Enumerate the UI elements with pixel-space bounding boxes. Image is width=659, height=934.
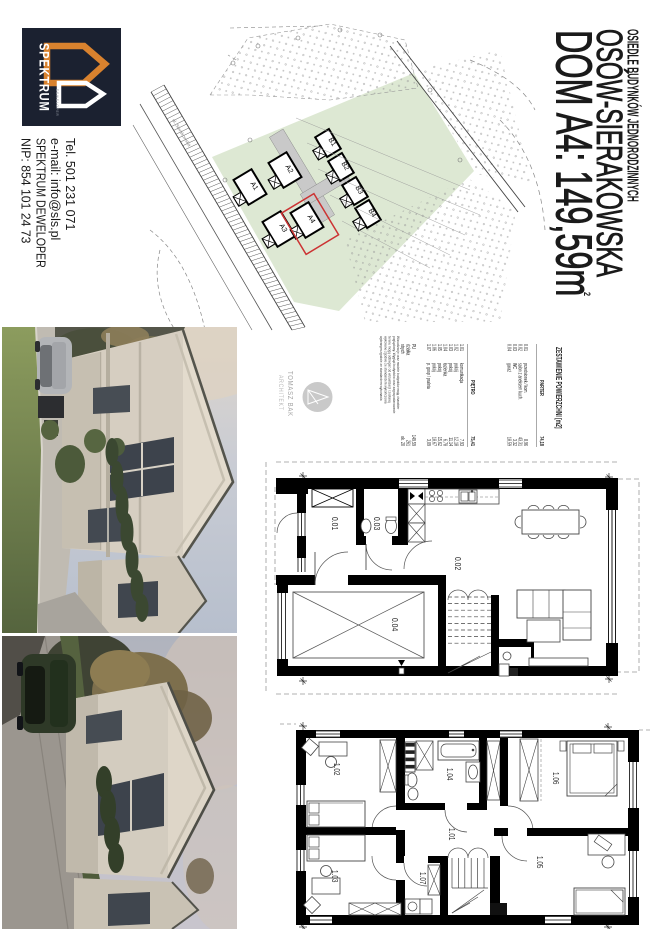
svg-text:DEWELOPER: DEWELOPER: [55, 89, 59, 117]
svg-text:PARTER: PARTER: [538, 380, 545, 396]
svg-text:DOM A4: 149,59m: DOM A4: 149,59m: [545, 30, 602, 296]
svg-text:ZESTAWIENIE POWIERZCHNI [m2]: ZESTAWIENIE POWIERZCHNI [m2]: [554, 347, 562, 429]
svg-text:75,41: 75,41: [469, 436, 476, 446]
svg-text:0.04: 0.04: [390, 618, 400, 632]
svg-text:0.04: 0.04: [506, 344, 512, 351]
svg-text:ARCHITEKT: ARCHITEKT: [277, 375, 283, 411]
svg-text:wybranym zgodnie ze standardem: wybranym zgodnie ze standardem wykonania: [379, 336, 383, 401]
svg-text:1.04: 1.04: [445, 768, 455, 780]
svg-text:PIĘTRO: PIĘTRO: [469, 380, 476, 395]
svg-text:1.07: 1.07: [426, 344, 432, 351]
svg-text:1.01: 1.01: [447, 828, 457, 840]
svg-text:1.07: 1.07: [418, 872, 428, 884]
svg-text:1.05: 1.05: [535, 856, 545, 868]
svg-text:NIP: 854 101 24 73: NIP: 854 101 24 73: [18, 138, 32, 244]
svg-text:SPEKTRUM: SPEKTRUM: [36, 43, 51, 112]
svg-text:3,09: 3,09: [426, 439, 432, 446]
svg-text:SPEKTRUM DEWELOPER: SPEKTRUM DEWELOPER: [33, 138, 47, 268]
svg-text:2: 2: [582, 292, 592, 296]
svg-text:e-mail: info@sls.pl: e-mail: info@sls.pl: [48, 138, 62, 240]
svg-text:1.06: 1.06: [551, 772, 561, 784]
svg-text:garaż: garaż: [506, 363, 512, 373]
svg-text:1.02: 1.02: [332, 763, 342, 775]
svg-text:1.03: 1.03: [330, 870, 340, 882]
svg-text:0.01: 0.01: [330, 517, 340, 530]
svg-text:p. gosp / pralnia: p. gosp / pralnia: [426, 363, 432, 389]
svg-text:74,18: 74,18: [538, 436, 545, 446]
svg-text:0.02: 0.02: [453, 557, 463, 570]
svg-text:0.03: 0.03: [372, 517, 382, 530]
svg-text:18,59: 18,59: [506, 437, 512, 446]
svg-text:Tel. 501 231 071: Tel. 501 231 071: [63, 138, 77, 230]
svg-text:TOMASZ BAK: TOMASZ BAK: [286, 371, 294, 417]
svg-text:ok. 20: ok. 20: [400, 436, 406, 446]
